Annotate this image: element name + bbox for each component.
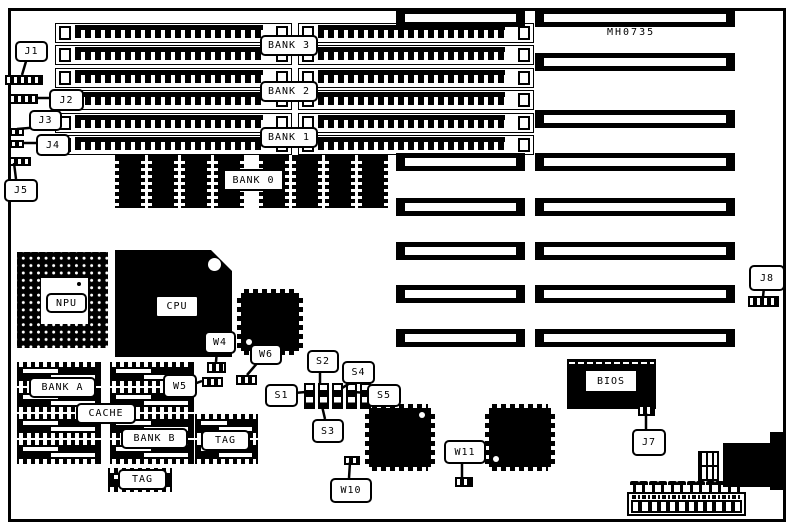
tag-label: TAG [118, 469, 167, 490]
bank0-label: BANK 0 [223, 169, 284, 191]
j1-label: J1 [15, 41, 48, 62]
bank1-label: BANK 1 [260, 127, 318, 148]
s3-label: S3 [312, 419, 344, 443]
w4-label: W4 [204, 331, 236, 354]
w5-label: W5 [163, 374, 197, 398]
bank-a-label: BANK A [29, 377, 96, 398]
s4-label: S4 [342, 361, 375, 384]
callout-pointer-lines [0, 0, 791, 527]
bank2-label: BANK 2 [260, 81, 318, 102]
bank-b-label: BANK B [121, 428, 188, 449]
j2-label: J2 [49, 89, 84, 111]
motherboard-diagram: MH0735 [0, 0, 791, 527]
j8-label: J8 [749, 265, 785, 291]
j5-label: J5 [4, 179, 38, 202]
cache-label: CACHE [76, 403, 136, 424]
j7-label: J7 [632, 429, 666, 456]
w10-label: W10 [330, 478, 372, 503]
w11-label: W11 [444, 440, 486, 464]
tag-label: TAG [201, 430, 250, 451]
bank3-label: BANK 3 [260, 35, 318, 56]
s2-label: S2 [307, 350, 339, 373]
j4-label: J4 [36, 134, 70, 156]
s1-label: S1 [265, 384, 298, 407]
w6-label: W6 [250, 344, 282, 365]
s5-label: S5 [367, 384, 401, 407]
j3-label: J3 [29, 110, 62, 131]
